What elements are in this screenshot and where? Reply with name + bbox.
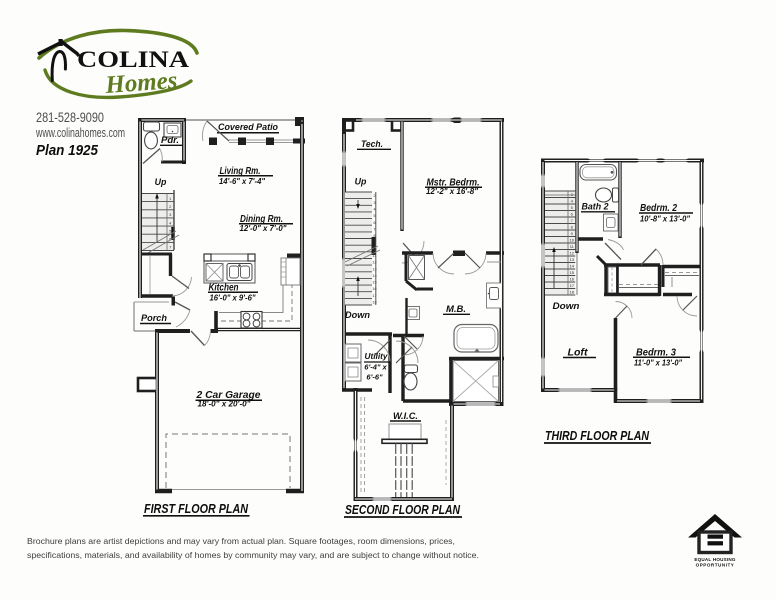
svg-text:Down: Down (345, 310, 370, 320)
svg-text:Covered Patio: Covered Patio (218, 122, 278, 133)
svg-text:Tech.: Tech. (361, 139, 383, 149)
svg-text:FIRST FLOOR PLAN: FIRST FLOOR PLAN (144, 501, 248, 516)
svg-text:16: 16 (372, 286, 377, 291)
svg-text:EQUAL HOUSING: EQUAL HOUSING (694, 557, 736, 562)
svg-text:14: 14 (570, 264, 575, 269)
svg-text:THIRD FLOOR PLAN: THIRD FLOOR PLAN (545, 428, 649, 443)
svg-text:12'-0" x 7'-0": 12'-0" x 7'-0" (240, 224, 287, 233)
svg-text:14: 14 (372, 273, 377, 278)
svg-text:12: 12 (372, 260, 377, 265)
svg-text:Porch: Porch (141, 313, 167, 323)
svg-text:Down: Down (553, 301, 580, 311)
svg-text:www.colinahomes.com: www.colinahomes.com (35, 126, 125, 140)
svg-text:18'-0" x 20'-0": 18'-0" x 20'-0" (198, 400, 251, 409)
svg-text:Utility: Utility (365, 351, 389, 361)
svg-text:W.I.C.: W.I.C. (393, 411, 418, 421)
svg-text:Plan 1925: Plan 1925 (36, 143, 99, 159)
svg-text:10'-8" x 13'-0": 10'-8" x 13'-0" (640, 215, 690, 224)
svg-text:10: 10 (570, 238, 575, 243)
svg-text:16'-0" x 9'-6": 16'-0" x 9'-6" (210, 294, 256, 303)
svg-text:M.B.: M.B. (446, 304, 466, 314)
svg-text:281-528-9090: 281-528-9090 (36, 110, 104, 125)
svg-text:18: 18 (372, 300, 377, 305)
svg-text:Up: Up (355, 177, 367, 187)
svg-text:17: 17 (570, 283, 575, 288)
svg-text:OPPORTUNITY: OPPORTUNITY (696, 563, 735, 568)
svg-text:15: 15 (372, 280, 377, 285)
svg-text:Up: Up (155, 177, 167, 187)
svg-text:specifications, materials, and: specifications, materials, and availabil… (27, 550, 479, 560)
svg-text:6'-6": 6'-6" (366, 373, 383, 382)
svg-text:16: 16 (570, 277, 575, 282)
svg-text:Brochure plans are artist depi: Brochure plans are artist depictions and… (27, 536, 455, 546)
svg-text:18: 18 (570, 290, 575, 295)
svg-text:Bath 2: Bath 2 (582, 202, 609, 212)
svg-text:SECOND FLOOR PLAN: SECOND FLOOR PLAN (345, 502, 460, 517)
svg-text:Pdr.: Pdr. (161, 135, 179, 145)
svg-text:13: 13 (372, 266, 377, 271)
svg-text:12: 12 (570, 251, 575, 256)
svg-text:11'-0" x 13'-0": 11'-0" x 13'-0" (634, 359, 682, 368)
svg-text:14'-6" x 7'-4": 14'-6" x 7'-4" (219, 177, 265, 186)
svg-text:17: 17 (372, 293, 377, 298)
svg-text:Homes: Homes (104, 67, 179, 99)
svg-text:13: 13 (570, 257, 575, 262)
svg-text:6'-4" x: 6'-4" x (364, 363, 387, 372)
svg-text:12'-2" x 16'-8": 12'-2" x 16'-8" (426, 187, 478, 196)
svg-text:15: 15 (570, 270, 575, 275)
